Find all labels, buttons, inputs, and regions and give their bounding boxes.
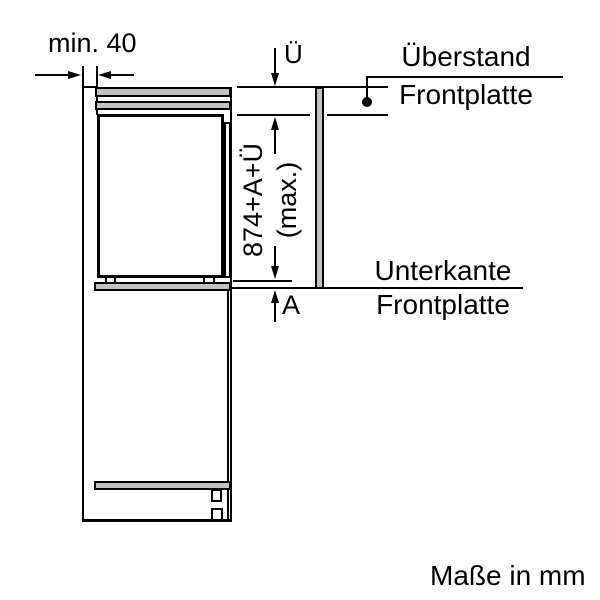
- furniture-front-panel: [315, 87, 324, 289]
- cabinet-bottom-line: [82, 519, 232, 522]
- min-gap-arrow-right-shaft: [35, 74, 69, 76]
- a-dim-label: A: [282, 291, 300, 321]
- min-gap-label: min. 40: [48, 29, 137, 59]
- ue-arrow-head: [271, 73, 279, 86]
- min-gap-arrow-left-shaft: [110, 74, 134, 76]
- min-gap-arrow-right-head: [68, 71, 81, 79]
- door-foot-right: [203, 276, 215, 284]
- door-foot-left: [105, 276, 116, 284]
- leader-horizontal-line: [366, 76, 563, 78]
- niche-left-wall-line: [82, 66, 84, 522]
- a-dim-arrow-shaft: [274, 302, 276, 322]
- front-panel-height-formula: 874+A+Ü: [236, 100, 270, 300]
- ueberstand-label-line1: Überstand: [368, 42, 564, 73]
- top-mounting-rail-upper: [95, 87, 231, 97]
- lower-bracket-upper: [211, 489, 222, 502]
- lower-bracket-bottom: [211, 508, 223, 521]
- door-top-reference-line-right: [327, 114, 388, 116]
- front-panel-height-label: 874+A+Ü (max.): [236, 100, 304, 300]
- unterkante-label-line1: Unterkante: [358, 256, 528, 287]
- units-caption: Maße in mm: [430, 561, 585, 592]
- installation-diagram: min. 40 Ü 874+A+Ü (max.) A Überstand Fro…: [0, 0, 600, 600]
- top-mounting-rail-lower: [95, 101, 231, 110]
- unterkante-label-line2: Frontplatte: [358, 290, 528, 321]
- door-hinge-strip: [224, 122, 231, 278]
- ue-arrow-shaft: [274, 48, 276, 75]
- ue-dim-label: Ü: [284, 40, 303, 69]
- ueberstand-label-line2: Frontplatte: [368, 80, 564, 111]
- front-panel-height-max: (max.): [270, 100, 304, 300]
- appliance-door: [97, 114, 224, 278]
